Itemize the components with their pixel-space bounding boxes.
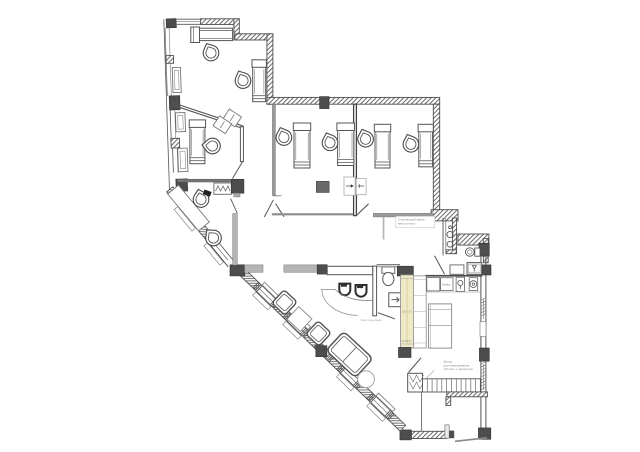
svg-text:600x600: 600x600	[402, 340, 412, 343]
svg-text:верх полога: верх полога	[398, 222, 415, 226]
svg-text:Мойка: Мойка	[442, 283, 451, 287]
svg-text:ШК 1.05: ШК 1.05	[402, 310, 412, 314]
svg-text:Свет: инд. выкл.: Свет: инд. выкл.	[361, 318, 383, 322]
svg-text:(15 мест с зеркалом): (15 мест с зеркалом)	[444, 367, 473, 371]
